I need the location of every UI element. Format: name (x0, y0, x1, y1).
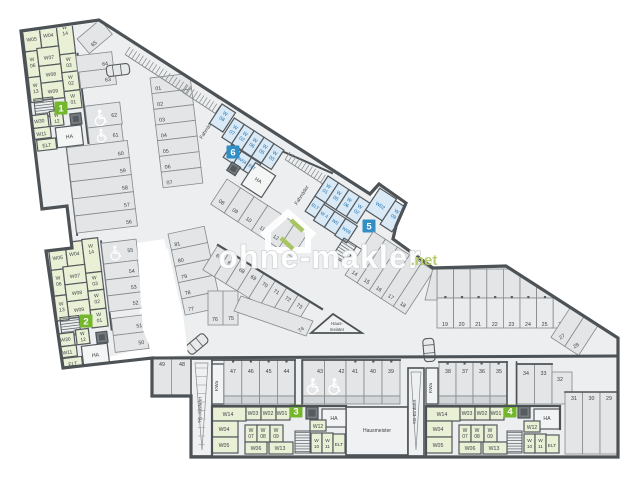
svg-text:W05: W05 (26, 36, 37, 43)
svg-text:Hausmeister: Hausmeister (363, 428, 391, 434)
svg-text:47: 47 (230, 369, 236, 375)
svg-text:12: 12 (54, 118, 60, 125)
svg-text:12: 12 (80, 337, 86, 344)
svg-text:W: W (325, 438, 330, 444)
svg-text:W30: W30 (60, 337, 71, 344)
svg-text:39: 39 (388, 369, 394, 375)
svg-text:07: 07 (462, 434, 468, 440)
svg-text:01: 01 (96, 318, 102, 325)
svg-text:02: 02 (94, 299, 100, 306)
svg-text:ELT: ELT (548, 443, 557, 449)
svg-text:1: 1 (58, 103, 64, 114)
svg-text:34: 34 (523, 371, 529, 377)
svg-text:14: 14 (88, 249, 94, 256)
svg-text:58: 58 (122, 185, 129, 192)
svg-text:38: 38 (445, 369, 451, 375)
svg-text:W04: W04 (69, 251, 80, 258)
svg-text:60: 60 (118, 151, 125, 158)
svg-text:W05: W05 (52, 255, 63, 262)
svg-text:03: 03 (66, 62, 72, 69)
svg-text:W03: W03 (248, 411, 259, 417)
svg-text:19: 19 (442, 322, 448, 328)
svg-text:TG-Ausfahrt: TG-Ausfahrt (198, 396, 204, 423)
svg-text:W09: W09 (48, 88, 59, 95)
svg-text:43: 43 (317, 369, 323, 375)
svg-text:63: 63 (105, 77, 112, 84)
svg-text:6: 6 (230, 147, 235, 158)
svg-text:2: 2 (83, 316, 88, 327)
svg-text:W13: W13 (489, 446, 500, 452)
svg-text:W12: W12 (313, 424, 324, 430)
svg-text:02: 02 (68, 80, 74, 87)
svg-text:06: 06 (164, 164, 171, 171)
svg-text:W11: W11 (62, 349, 73, 356)
svg-text:HA: HA (65, 134, 74, 141)
svg-text:51: 51 (136, 323, 143, 330)
svg-text:W08: W08 (72, 290, 83, 297)
svg-text:W06: W06 (251, 446, 262, 452)
svg-text:W: W (527, 438, 532, 444)
svg-text:29: 29 (606, 396, 612, 402)
svg-text:01: 01 (155, 86, 162, 93)
svg-text:W30: W30 (34, 118, 45, 125)
svg-text:09: 09 (273, 434, 279, 440)
svg-text:W03: W03 (462, 411, 473, 417)
svg-text:W04: W04 (219, 427, 230, 433)
svg-text:76: 76 (212, 317, 218, 323)
svg-text:55: 55 (127, 248, 134, 255)
svg-text:06: 06 (56, 281, 62, 288)
svg-text:4: 4 (507, 406, 513, 417)
svg-text:10: 10 (527, 444, 533, 450)
svg-text:HA: HA (91, 352, 100, 359)
svg-text:13: 13 (59, 307, 65, 314)
svg-text:5: 5 (366, 221, 372, 232)
svg-text:46: 46 (248, 369, 254, 375)
svg-text:37: 37 (462, 369, 468, 375)
svg-text:W14: W14 (223, 412, 234, 418)
svg-text:62: 62 (111, 112, 118, 119)
svg-text:07: 07 (166, 180, 173, 187)
svg-text:22: 22 (492, 322, 498, 328)
svg-text:23: 23 (508, 322, 514, 328)
svg-text:02: 02 (157, 101, 164, 108)
svg-text:KWa: KWa (428, 383, 434, 394)
svg-text:49: 49 (159, 362, 165, 368)
svg-text:W05: W05 (219, 443, 230, 449)
svg-text:36: 36 (479, 369, 485, 375)
svg-text:3: 3 (293, 406, 298, 417)
svg-text:HA: HA (543, 416, 551, 422)
svg-text:W05: W05 (433, 443, 444, 449)
svg-text:TG-Einfahrt: TG-Einfahrt (412, 399, 418, 424)
svg-text:48: 48 (179, 362, 185, 368)
svg-text:08: 08 (260, 434, 266, 440)
svg-text:ELT: ELT (42, 143, 51, 150)
svg-text:45: 45 (266, 369, 272, 375)
svg-text:W04: W04 (433, 427, 444, 433)
svg-text:53: 53 (130, 284, 137, 291)
svg-text:40: 40 (370, 369, 376, 375)
svg-text:25: 25 (542, 322, 548, 328)
svg-text:30: 30 (589, 396, 595, 402)
svg-text:W14: W14 (437, 412, 448, 418)
svg-text:W: W (538, 438, 543, 444)
svg-text:75: 75 (228, 316, 234, 322)
svg-text:W07: W07 (44, 55, 55, 62)
svg-text:08: 08 (474, 434, 480, 440)
svg-text:ohne-makler: ohne-makler (218, 239, 421, 275)
svg-text:33: 33 (541, 371, 547, 377)
svg-text:ELT: ELT (335, 442, 344, 448)
svg-text:52: 52 (132, 300, 139, 307)
svg-text:09: 09 (487, 434, 493, 440)
svg-text:61: 61 (112, 132, 119, 139)
svg-text:21: 21 (475, 322, 481, 328)
svg-text:W01: W01 (491, 411, 502, 417)
svg-text:54: 54 (129, 269, 136, 276)
svg-text:HA: HA (330, 416, 338, 422)
svg-text:59: 59 (120, 168, 127, 175)
svg-text:W07: W07 (70, 273, 81, 280)
svg-text:W08: W08 (46, 71, 57, 78)
svg-text:11: 11 (538, 444, 543, 450)
svg-text:W13: W13 (275, 446, 286, 452)
svg-text:56: 56 (126, 219, 133, 226)
svg-text:W02: W02 (477, 411, 488, 417)
svg-text:41: 41 (352, 369, 358, 375)
svg-text:W12: W12 (527, 425, 538, 431)
svg-text:W02: W02 (263, 411, 274, 417)
svg-text:35: 35 (496, 369, 502, 375)
svg-text:11: 11 (325, 444, 330, 450)
svg-text:meister: meister (330, 327, 345, 332)
svg-text:44: 44 (283, 369, 289, 375)
svg-text:50: 50 (138, 340, 145, 347)
svg-text:31: 31 (571, 396, 577, 402)
svg-text:W: W (314, 438, 319, 444)
svg-text:Haus-: Haus- (331, 321, 343, 326)
svg-text:03: 03 (159, 117, 166, 124)
svg-text:05: 05 (163, 149, 170, 156)
svg-text:20: 20 (459, 322, 465, 328)
svg-text:KWa: KWa (214, 381, 220, 392)
svg-text:01: 01 (70, 99, 76, 106)
svg-text:W09: W09 (74, 307, 85, 314)
svg-text:10: 10 (314, 444, 320, 450)
svg-text:57: 57 (124, 202, 131, 209)
svg-text:W06: W06 (465, 446, 476, 452)
svg-text:W01: W01 (277, 411, 288, 417)
svg-text:32: 32 (557, 377, 563, 383)
svg-text:W11: W11 (36, 131, 47, 138)
svg-text:06: 06 (30, 63, 36, 70)
svg-text:24: 24 (525, 322, 531, 328)
svg-text:W04: W04 (43, 32, 54, 39)
svg-text:03: 03 (92, 281, 98, 288)
svg-text:13: 13 (33, 89, 39, 96)
svg-text:42: 42 (339, 369, 345, 375)
svg-text:04: 04 (161, 133, 168, 140)
svg-text:.net: .net (411, 252, 438, 269)
svg-text:14: 14 (62, 31, 68, 38)
svg-text:07: 07 (248, 434, 254, 440)
